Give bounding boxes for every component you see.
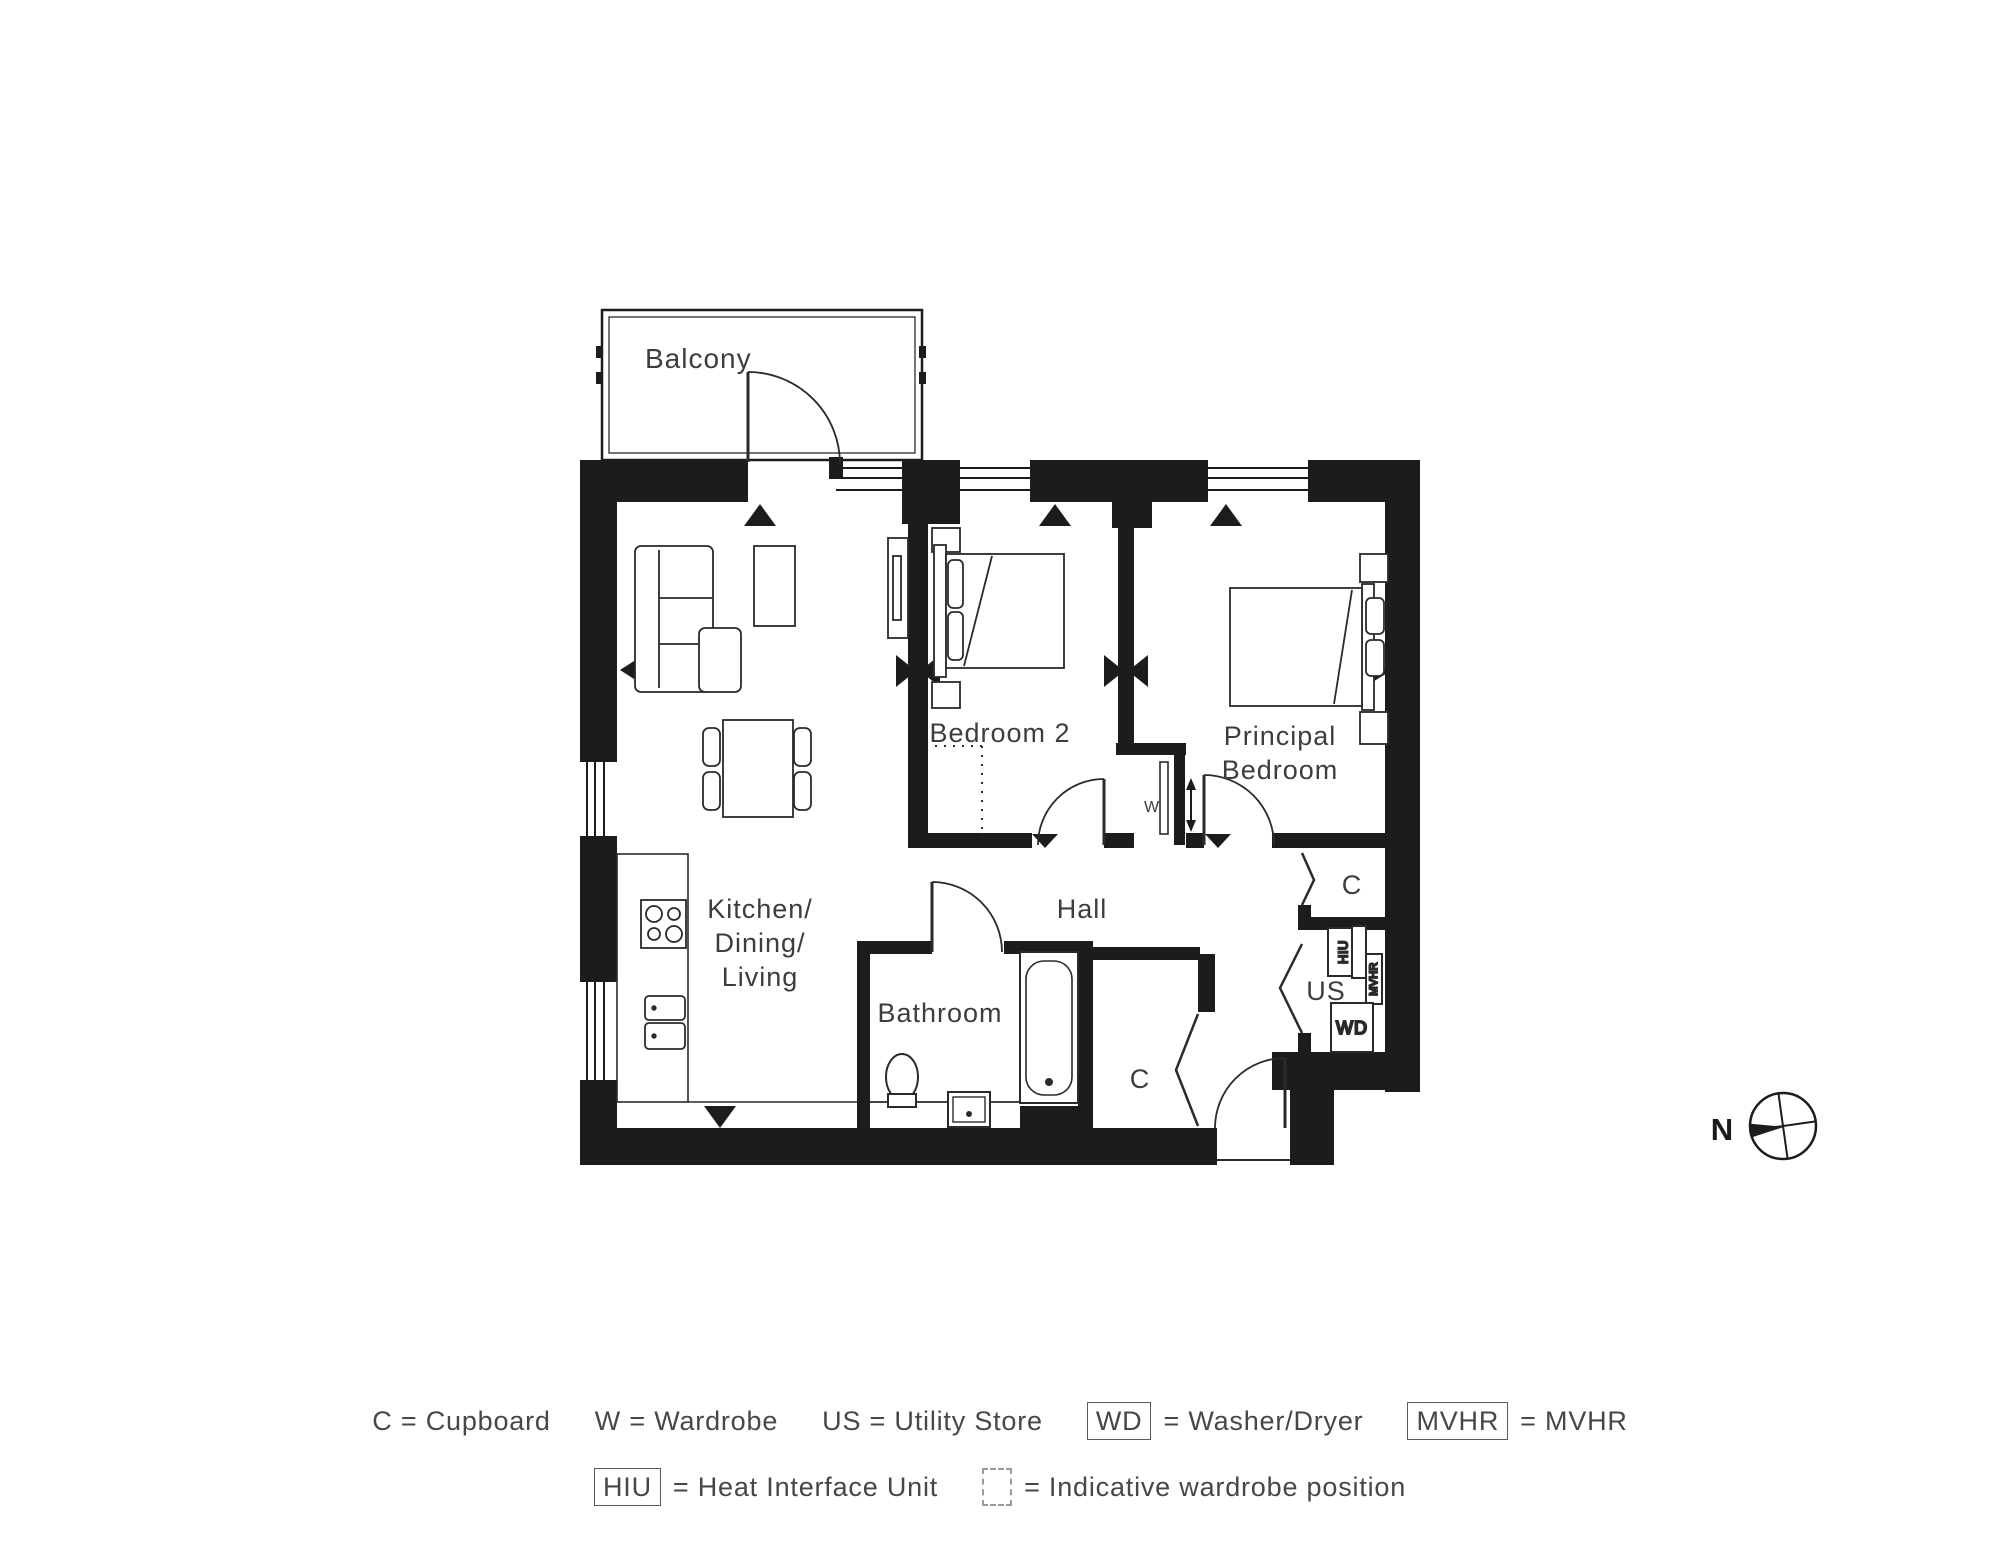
wall-principal-door-stub	[1186, 833, 1204, 848]
arrow-head-up-icon	[1186, 778, 1196, 790]
living-furniture	[635, 538, 908, 817]
bed2-pillow	[948, 612, 963, 660]
sink-tap-dot	[652, 1034, 656, 1038]
bathroom-label: Bathroom	[877, 998, 1002, 1028]
dining-chair	[703, 772, 720, 810]
kitchen-sink-bowl	[645, 1023, 685, 1049]
wall-bathroom-right	[1078, 954, 1093, 1130]
legend-cupboard-text: C = Cupboard	[372, 1406, 550, 1437]
wall-wardrobe-top	[1116, 743, 1186, 755]
dashed-wardrobe-box-icon	[982, 1468, 1012, 1506]
kitchen-label-line3: Living	[722, 962, 799, 992]
wall-utility-bottom	[1272, 1052, 1420, 1090]
wall-cupboard-stub	[1298, 905, 1311, 919]
kitchen-counter	[617, 854, 688, 1102]
balcony-door-swing	[748, 372, 840, 464]
wardrobe-niche: W	[1144, 762, 1196, 834]
wd-label: WD	[1336, 1018, 1368, 1038]
tv-unit-slot	[893, 556, 901, 620]
dining-chair	[703, 728, 720, 766]
legend-mvhr-text: = MVHR	[1520, 1406, 1628, 1437]
vent-triangle-bedroom2	[1039, 504, 1071, 526]
balcony-inner-outline	[609, 317, 915, 453]
balcony: Balcony	[596, 310, 926, 460]
cupboard-top-bifold-door	[1302, 853, 1314, 905]
legend-row-2: HIU = Heat Interface Unit = Indicative w…	[0, 1468, 2000, 1506]
utility-bifold-door	[1280, 944, 1302, 1033]
cupboard-top-label: C	[1342, 870, 1363, 900]
legend-cupboard: C = Cupboard	[372, 1406, 550, 1437]
balcony-tick	[596, 346, 603, 358]
utility-shelf	[1352, 926, 1366, 978]
legend-wd-text: = Washer/Dryer	[1163, 1406, 1363, 1437]
dining-chair	[794, 772, 811, 810]
wall-bottom	[580, 1128, 1217, 1165]
kitchen-label-line1: Kitchen/	[707, 894, 813, 924]
legend-wd-box: WD	[1087, 1402, 1152, 1440]
basin-inner	[953, 1097, 985, 1122]
bathroom-fixtures	[870, 952, 1078, 1128]
principal-pillow	[1366, 598, 1384, 634]
arrow-head-down-icon	[1186, 820, 1196, 832]
principal-pillow	[1366, 640, 1384, 676]
sofa-chaise	[699, 628, 741, 692]
utility-store-label: US	[1306, 976, 1346, 1006]
wall-cupboard-bottom-top	[1093, 947, 1200, 960]
balcony-tick	[919, 346, 926, 358]
legend-indicative-wardrobe: = Indicative wardrobe position	[982, 1468, 1406, 1506]
floorplan-drawing: Balcony	[0, 0, 2000, 1561]
vent-triangle-living	[744, 504, 776, 526]
bathtub-end-panel	[1020, 1106, 1078, 1128]
basin-tap-dot	[967, 1112, 972, 1117]
balcony-tick	[919, 372, 926, 384]
legend-mvhr: MVHR = MVHR	[1407, 1402, 1627, 1440]
wall-wardrobe-right	[1174, 755, 1185, 845]
wall-utility-stub	[1298, 1033, 1311, 1053]
bathtub-drain-dot	[1046, 1079, 1053, 1086]
mvhr-label: MVHR	[1368, 962, 1380, 996]
bathtub-inner	[1026, 961, 1072, 1095]
wall-principal-bottom	[1272, 833, 1420, 848]
kitchen-sink-bowl	[645, 996, 685, 1020]
floorplan-page: Balcony	[0, 0, 2000, 1561]
legend-hiu-text: = Heat Interface Unit	[673, 1472, 938, 1503]
hiu-label: HIU	[1336, 940, 1351, 964]
balcony-tick	[596, 372, 603, 384]
legend-hiu: HIU = Heat Interface Unit	[594, 1468, 938, 1506]
legend-utility-store-text: US = Utility Store	[822, 1406, 1043, 1437]
wall-bottom-right-step	[1290, 1087, 1334, 1165]
wall-bathroom-left	[857, 954, 870, 1130]
legend-hiu-box: HIU	[594, 1468, 661, 1506]
bedroom2-furniture	[932, 528, 1064, 838]
door-marker-bedroom2	[1032, 834, 1058, 848]
legend-washer-dryer: WD = Washer/Dryer	[1087, 1402, 1364, 1440]
kitchen-label-line2: Dining/	[714, 928, 805, 958]
toilet-cistern	[888, 1094, 916, 1107]
dining-table	[723, 720, 793, 817]
wall-left-mid	[580, 836, 617, 982]
wall-top-pier2-stub	[1112, 500, 1152, 528]
coffee-table	[754, 546, 795, 626]
bed2-pillow	[948, 560, 963, 608]
principal-label-line2: Bedroom	[1222, 755, 1339, 785]
balcony-outline	[602, 310, 922, 460]
wall-bedroom2-bottom	[908, 833, 1032, 848]
wall-top-pier2	[1030, 460, 1208, 502]
wall-cupboard-bottom-right-stub	[1198, 954, 1215, 1012]
principal-furniture	[1230, 554, 1388, 744]
legend-indicative-wardrobe-text: = Indicative wardrobe position	[1024, 1472, 1406, 1503]
wall-bathroom-top-left	[857, 941, 932, 954]
hall-label: Hall	[1057, 894, 1108, 924]
balcony-label: Balcony	[645, 343, 752, 374]
wall-bedroom2-principal	[1118, 524, 1134, 755]
north-compass: N	[1711, 1089, 1820, 1164]
bedside-table	[1360, 712, 1388, 744]
north-label: N	[1711, 1112, 1733, 1147]
indicative-wardrobe-position	[935, 746, 982, 838]
wall-bedroom2-bottom-stub	[1104, 833, 1134, 848]
wall-left-upper	[580, 460, 617, 762]
legend-utility-store: US = Utility Store	[822, 1406, 1043, 1437]
bedside-table	[932, 682, 960, 708]
principal-label-line1: Principal	[1224, 721, 1337, 751]
vent-triangle-bottom-wall	[704, 1106, 736, 1128]
cupboard-bottom-label: C	[1130, 1064, 1151, 1094]
sink-tap-dot	[652, 1006, 656, 1010]
wall-right	[1385, 460, 1420, 1092]
vent-triangle-principal	[1210, 504, 1242, 526]
bed2-headboard	[934, 545, 946, 677]
bathroom-door-swing	[932, 882, 1002, 952]
legend-mvhr-box: MVHR	[1407, 1402, 1508, 1440]
legend-wardrobe-text: W = Wardrobe	[595, 1406, 778, 1437]
wardrobe-label: W	[1144, 799, 1160, 816]
door-marker-principal	[1205, 834, 1231, 848]
wardrobe-sliding-panel	[1160, 762, 1168, 834]
dining-chair	[794, 728, 811, 766]
bedside-table	[1360, 554, 1388, 582]
legend-row-1: C = Cupboard W = Wardrobe US = Utility S…	[0, 1402, 2000, 1440]
cupboard-bottom-bifold-door	[1176, 1014, 1198, 1126]
legend-wardrobe: W = Wardrobe	[595, 1406, 778, 1437]
bedroom2-label: Bedroom 2	[929, 718, 1070, 748]
